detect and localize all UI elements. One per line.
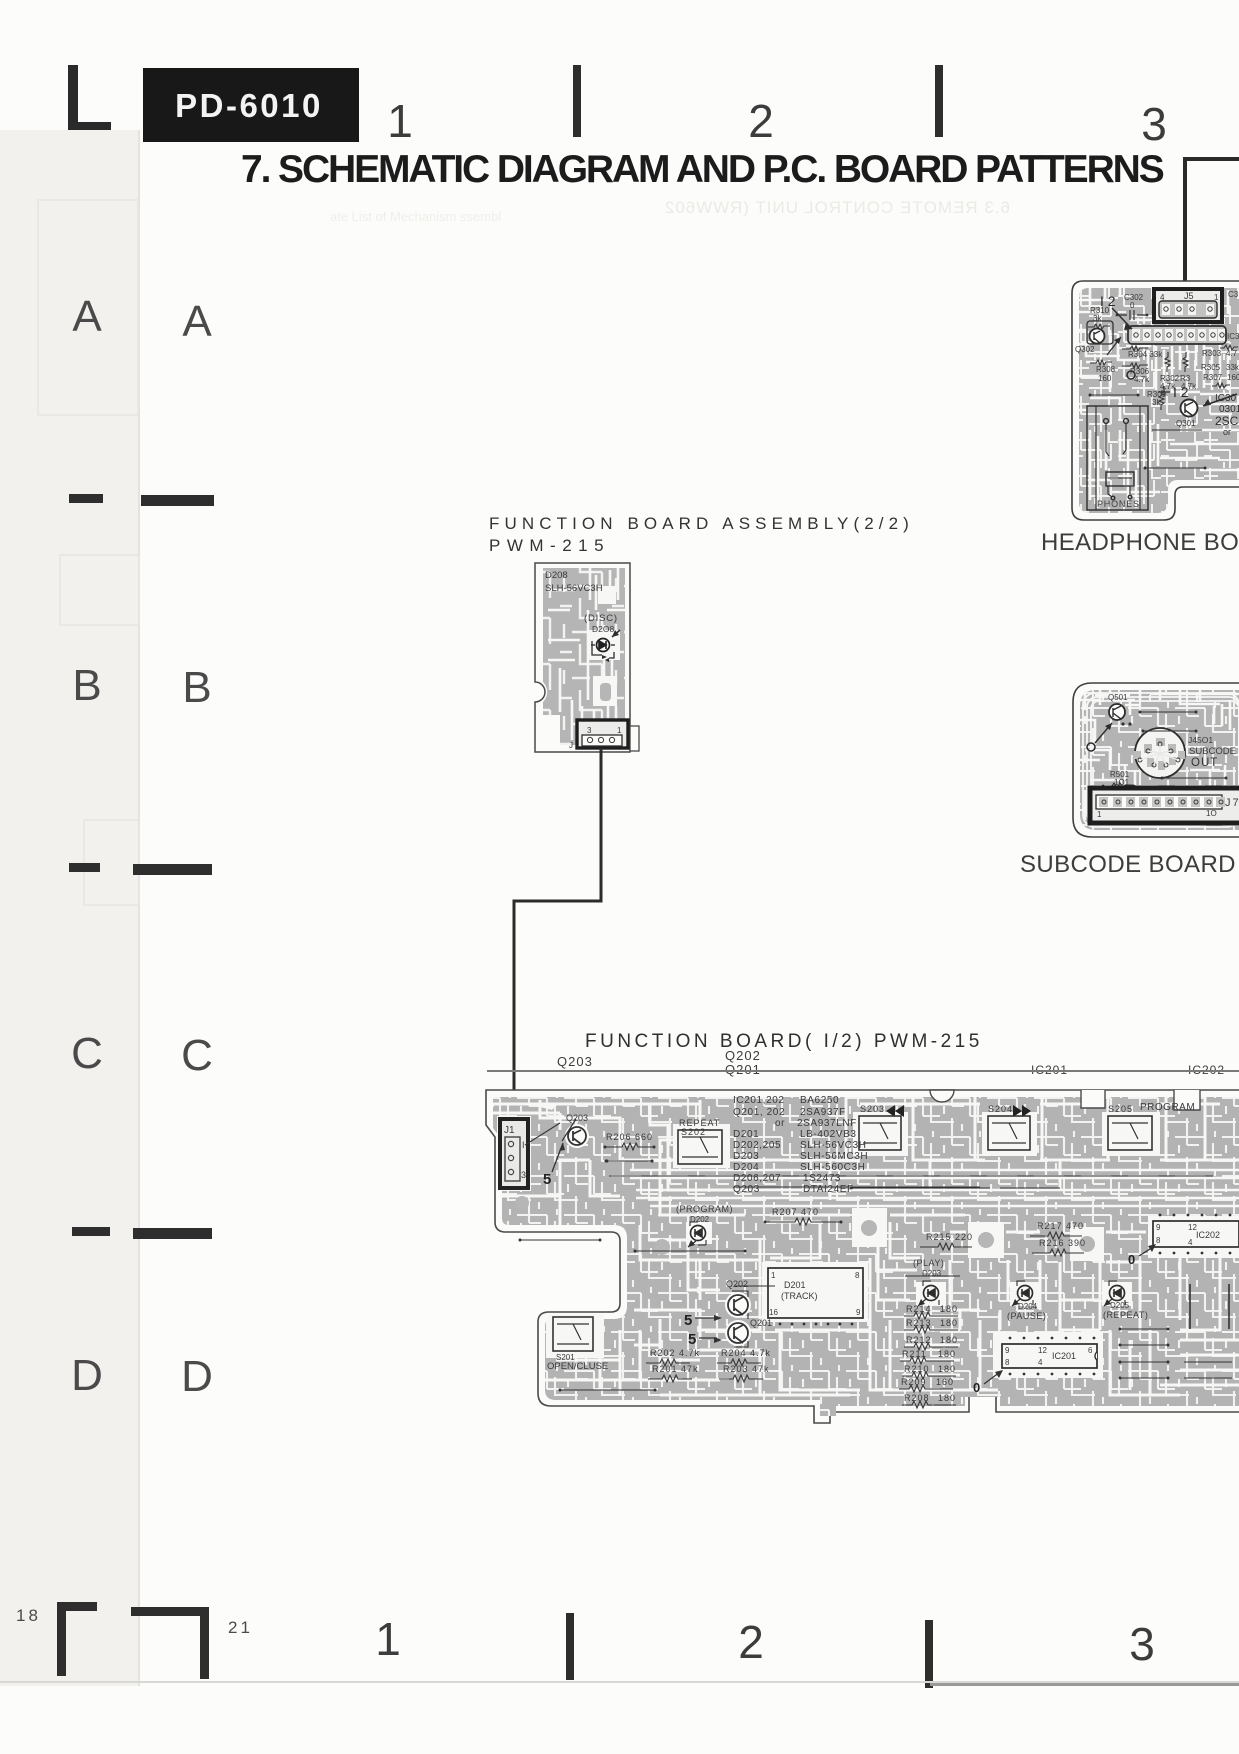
svg-text:Q202: Q202 [725,1048,761,1063]
svg-text:J7: J7 [1225,797,1239,809]
svg-text:0: 0 [973,1380,980,1395]
svg-text:9: 9 [1156,1223,1161,1232]
svg-text:S204: S204 [988,1104,1013,1114]
svg-text:PD-6010: PD-6010 [175,87,323,124]
svg-text:5: 5 [688,1331,696,1348]
svg-text:1: 1 [387,95,413,147]
svg-text:16: 16 [769,1308,778,1317]
svg-text:5: 5 [684,1312,692,1329]
svg-text:R217 470: R217 470 [1037,1221,1084,1231]
svg-text:8: 8 [1156,1236,1161,1245]
svg-text:D: D [71,1351,103,1400]
svg-text:A: A [182,297,212,346]
svg-text:9: 9 [856,1308,861,1317]
svg-text:2SA937LNF: 2SA937LNF [797,1118,857,1129]
svg-text:or: or [775,1118,785,1129]
svg-text:180: 180 [940,1304,958,1314]
svg-text:D203: D203 [922,1269,942,1278]
svg-text:D2O8: D2O8 [592,624,614,634]
svg-text:180: 180 [940,1335,958,1345]
svg-text:6: 6 [1088,1346,1093,1355]
svg-text:160: 160 [936,1377,954,1387]
svg-text:S203: S203 [860,1104,885,1114]
svg-text:J: J [569,741,573,750]
svg-text:I 2: I 2 [1173,384,1189,400]
svg-text:Q201: Q201 [750,1318,772,1328]
svg-text:160: 160 [1227,373,1239,382]
svg-text:Q203: Q203 [733,1184,760,1195]
svg-text:21: 21 [228,1618,253,1637]
svg-text:2: 2 [738,1616,764,1668]
svg-text:R307: R307 [1203,373,1223,382]
svg-text:FUNCTION BOARD( I/2) PWM-215: FUNCTION BOARD( I/2) PWM-215 [585,1031,983,1052]
svg-text:(TRACK): (TRACK) [781,1291,818,1301]
svg-text:C3: C3 [1228,290,1239,299]
svg-text:PHONES: PHONES [1097,499,1140,509]
svg-text:(PAUSE): (PAUSE) [1007,1311,1046,1321]
svg-text:S205: S205 [1108,1104,1133,1114]
svg-text:R215 220: R215 220 [926,1232,973,1242]
svg-text:D: D [181,1352,213,1401]
svg-text:Q302: Q302 [1075,345,1095,354]
svg-text:B: B [72,661,101,710]
svg-text:D205: D205 [1110,1301,1130,1310]
svg-text:SLH-560C3H: SLH-560C3H [800,1162,865,1173]
svg-text:or: or [1223,427,1231,437]
svg-text:C: C [181,1031,213,1080]
svg-text:4: 4 [1038,1358,1043,1367]
svg-text:SLH-56VC3H: SLH-56VC3H [545,583,603,594]
svg-text:D204: D204 [733,1162,759,1173]
svg-text:0: 0 [1130,301,1135,310]
svg-text:4.7k: 4.7k [1134,375,1150,384]
svg-text:180: 180 [938,1349,956,1359]
svg-text:R304 33k: R304 33k [1128,350,1163,359]
svg-text:180: 180 [938,1393,956,1403]
svg-text:3: 3 [521,1170,526,1180]
svg-text:S202: S202 [681,1127,706,1137]
svg-text:HEADPHONE BOARD: HEADPHONE BOARD [1041,529,1239,556]
svg-text:IC202: IC202 [1196,1230,1220,1240]
svg-text:1: 1 [771,1271,776,1280]
svg-text:1S2473: 1S2473 [803,1173,841,1184]
svg-text:A: A [72,292,102,341]
svg-text:D204: D204 [1018,1302,1038,1311]
svg-text:D201: D201 [733,1129,759,1140]
svg-text:D203: D203 [733,1151,759,1162]
svg-text:2SA937F: 2SA937F [800,1107,846,1118]
svg-text:IC201,202: IC201,202 [733,1095,785,1106]
svg-text:J1: J1 [504,1125,515,1136]
svg-text:12: 12 [1038,1346,1047,1355]
svg-text:IC30: IC30 [1215,393,1237,404]
svg-text:SLH-56MC3H: SLH-56MC3H [800,1151,868,1162]
svg-text:1: 1 [617,726,622,735]
svg-text:Q301: Q301 [1176,419,1196,428]
svg-text:D208: D208 [545,570,568,581]
svg-text:4: 4 [1188,1238,1193,1247]
svg-text:1: 1 [1097,810,1102,819]
svg-text:PROGRAM: PROGRAM [1140,1102,1195,1113]
svg-text:2: 2 [748,95,774,147]
svg-text:R308: R308 [1096,365,1116,374]
svg-text:J5: J5 [1184,291,1194,301]
svg-text:LB-402VB3: LB-402VB3 [800,1129,857,1140]
svg-text:BA6250: BA6250 [800,1095,839,1106]
svg-text:I: I [522,1140,525,1150]
svg-text:D202,205: D202,205 [733,1140,781,1151]
svg-text:R204 4.7k: R204 4.7k [721,1348,771,1358]
svg-text:SLH-56VC3H: SLH-56VC3H [800,1140,867,1151]
svg-text:SUBCODE BOARD AS: SUBCODE BOARD AS [1020,851,1239,878]
svg-text:Q201, 202: Q201, 202 [733,1107,785,1118]
svg-text:FUNCTION BOARD ASSEMBLY(2/2): FUNCTION BOARD ASSEMBLY(2/2) [489,514,914,533]
svg-text:180: 180 [938,1364,956,1374]
svg-text:Q501: Q501 [1108,693,1128,702]
svg-text:R303: R303 [1202,349,1222,358]
svg-text:Q202: Q202 [726,1279,748,1289]
svg-text:5: 5 [543,1171,551,1188]
svg-text:Q203: Q203 [557,1054,593,1069]
svg-text:3: 3 [1141,98,1167,150]
svg-text:Q203: Q203 [566,1113,588,1123]
svg-text:IC3: IC3 [1227,332,1239,341]
svg-text:OUT: OUT [1191,757,1218,769]
svg-text:SUBCODE: SUBCODE [1189,746,1236,757]
svg-text:2SC: 2SC [1215,414,1239,428]
svg-text:PWM-215: PWM-215 [489,536,610,555]
svg-text:R211: R211 [902,1349,927,1359]
svg-text:8: 8 [1005,1358,1010,1367]
svg-text:3: 3 [1129,1618,1155,1670]
svg-text:ate List of Mechanism ssembl: ate List of Mechanism ssembl [330,209,501,224]
svg-text:3: 3 [587,726,592,735]
svg-text:33k: 33k [1226,363,1239,372]
svg-text:R305: R305 [1201,363,1221,372]
svg-text:1O: 1O [1206,809,1217,818]
svg-text:1: 1 [375,1613,401,1665]
svg-text:R202 4.7k: R202 4.7k [650,1348,700,1358]
svg-text:D202: D202 [690,1215,710,1224]
svg-text:0: 0 [1128,1252,1135,1267]
svg-text:R201 47k: R201 47k [652,1364,699,1374]
svg-text:R206 660: R206 660 [606,1132,653,1142]
svg-text:7. SCHEMATIC DIAGRAM AND P.C.: 7. SCHEMATIC DIAGRAM AND P.C. BOARD PATT… [241,148,1164,191]
svg-text:R203 47k: R203 47k [723,1364,770,1374]
svg-text:R207 470: R207 470 [772,1207,819,1217]
svg-text:D201: D201 [784,1280,806,1290]
svg-text:C: C [71,1029,103,1078]
svg-text:J45O1: J45O1 [1188,735,1213,745]
svg-text:6.3 REMOTE CONTROL UNIT (RWW60: 6.3 REMOTE CONTROL UNIT (RWW602 [664,198,1010,217]
svg-text:(PROGRAM): (PROGRAM) [676,1204,733,1214]
svg-text:(REPEAT): (REPEAT) [1103,1310,1148,1320]
svg-text:OPEN/CLUSE: OPEN/CLUSE [547,1361,608,1372]
svg-text:DTAI24EF: DTAI24EF [803,1184,854,1195]
svg-text:Q201: Q201 [725,1062,761,1077]
svg-text:180: 180 [940,1318,958,1328]
svg-text:(DISC): (DISC) [584,613,618,624]
svg-text:IC201: IC201 [1052,1351,1076,1361]
svg-text:(PLAY): (PLAY) [913,1258,944,1268]
svg-text:R216 390: R216 390 [1039,1238,1086,1248]
svg-text:160: 160 [1098,374,1112,383]
svg-text:9: 9 [1005,1346,1010,1355]
svg-text:B: B [182,663,211,712]
svg-text:D206,207: D206,207 [733,1173,781,1184]
svg-text:18: 18 [16,1606,41,1625]
svg-text:3k: 3k [1152,398,1161,407]
svg-text:8: 8 [855,1271,860,1280]
